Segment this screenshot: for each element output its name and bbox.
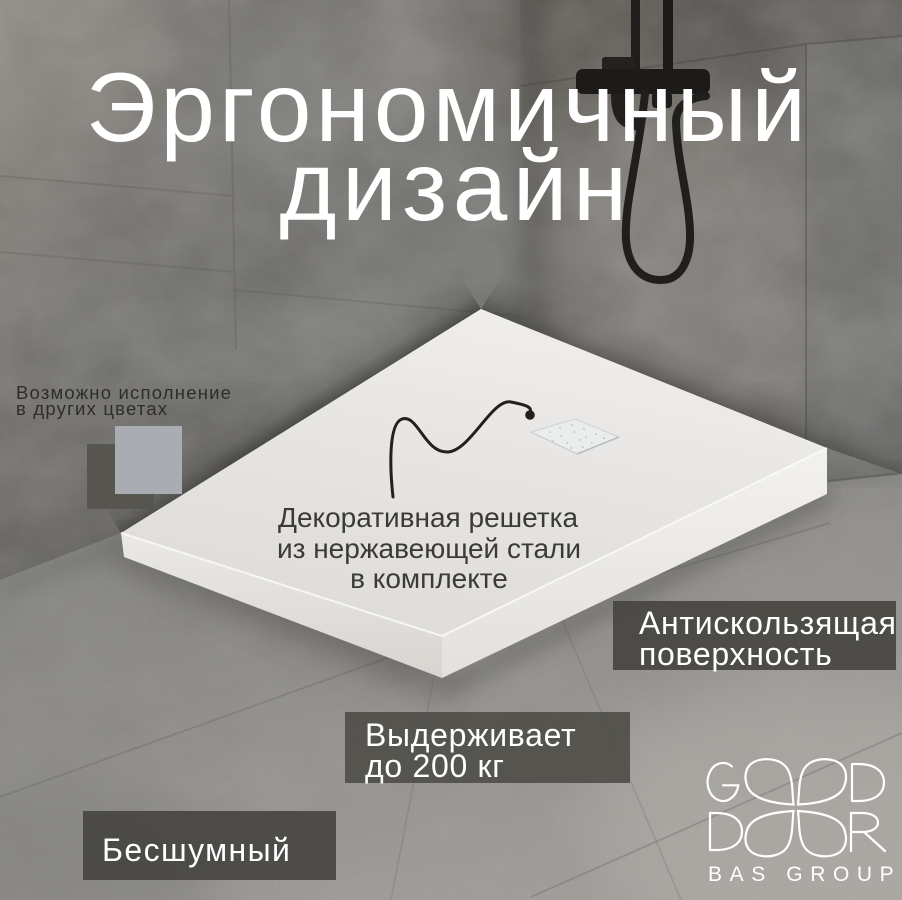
svg-text:Декоративная решетка: Декоративная решетка	[278, 502, 578, 533]
svg-text:BAS GROUP: BAS GROUP	[708, 863, 901, 886]
svg-text:дизайн: дизайн	[279, 131, 632, 241]
svg-text:Бесшумный: Бесшумный	[102, 832, 291, 868]
svg-text:до 200 кг: до 200 кг	[365, 748, 505, 784]
svg-text:в других цветах: в других цветах	[16, 398, 168, 419]
svg-text:из нержавеющей стали: из нержавеющей стали	[277, 533, 581, 564]
svg-text:в комплекте: в комплекте	[350, 563, 508, 594]
svg-text:поверхность: поверхность	[639, 636, 833, 672]
